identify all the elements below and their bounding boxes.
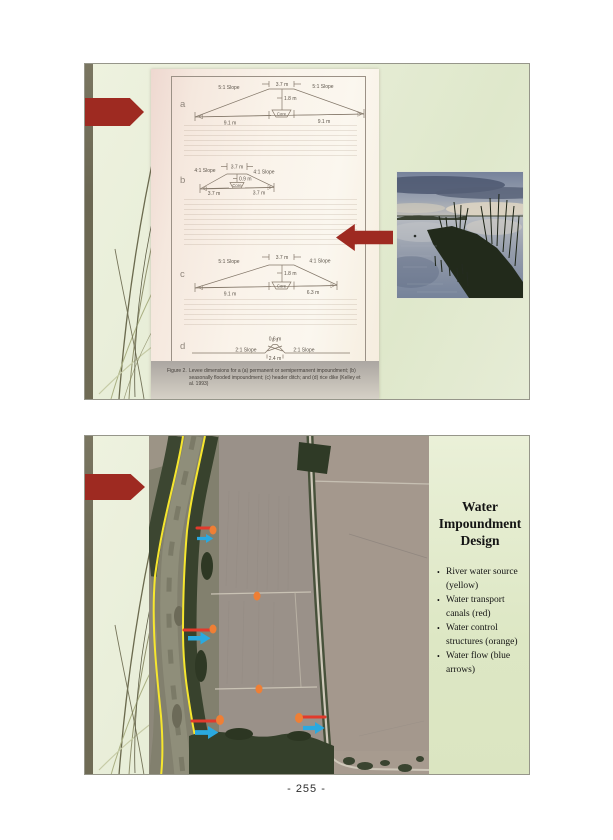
svg-text:2:1 Slope: 2:1 Slope xyxy=(293,348,314,354)
red-arrow-right-icon xyxy=(85,474,145,500)
figure-caption-text: Levee dimensions for a (a) permanent or … xyxy=(189,368,366,388)
svg-text:5:1 Slope: 5:1 Slope xyxy=(218,85,239,91)
svg-text:5:1 Slope: 5:1 Slope xyxy=(312,84,333,90)
svg-text:4:1 Slope: 4:1 Slope xyxy=(253,170,274,176)
slide-levee-dimensions: a 3.7 m 5:1 Slope 5:1 Slope 1.8 m Co xyxy=(84,63,530,400)
svg-text:b: b xyxy=(180,175,185,186)
design-legend-panel: Water Impoundment Design River water sou… xyxy=(429,436,530,775)
legend-item: River water source (yellow) xyxy=(435,566,525,593)
legend-list: River water source (yellow) Water transp… xyxy=(435,566,525,677)
svg-text:Core: Core xyxy=(277,284,287,289)
legend-item: Water transport canals (red) xyxy=(435,594,525,621)
svg-text:Core: Core xyxy=(232,183,242,188)
legend-item: Water control structures (orange) xyxy=(435,622,525,649)
page-number: - 255 - xyxy=(0,783,613,795)
svg-text:1.8 m: 1.8 m xyxy=(284,271,297,277)
diagram-a: a 3.7 m 5:1 Slope 5:1 Slope 1.8 m Co xyxy=(180,81,364,127)
figure-frame: a 3.7 m 5:1 Slope 5:1 Slope 1.8 m Co xyxy=(171,76,366,362)
flooded-impoundment-photo xyxy=(396,171,524,299)
svg-text:4:1 Slope: 4:1 Slope xyxy=(309,259,330,265)
figure-caption-label: Figure 2. xyxy=(167,368,189,388)
svg-text:5:1 Slope: 5:1 Slope xyxy=(218,259,239,265)
svg-text:d: d xyxy=(180,341,185,352)
diagram-b: b 3.7 m 4:1 Slope 4:1 Slope 0.9 m Core xyxy=(180,163,275,197)
svg-text:3.7 m: 3.7 m xyxy=(276,255,289,261)
svg-text:9.1 m: 9.1 m xyxy=(224,292,237,298)
svg-text:4:1 Slope: 4:1 Slope xyxy=(194,168,215,174)
diagram-d: d 0.6 m 2:1 Slope 2:1 Slope 2.4 m xyxy=(180,337,350,362)
svg-text:3.7 m: 3.7 m xyxy=(253,191,266,197)
svg-text:3.7 m: 3.7 m xyxy=(276,82,289,88)
svg-text:2:1 Slope: 2:1 Slope xyxy=(235,348,256,354)
svg-text:9.1 m: 9.1 m xyxy=(318,119,331,125)
red-arrow-right-icon xyxy=(85,98,144,126)
svg-text:0.6 m: 0.6 m xyxy=(269,337,282,343)
svg-text:6.3 m: 6.3 m xyxy=(307,290,320,296)
panel-title: Water Impoundment Design xyxy=(435,498,525,549)
levee-cross-sections: a 3.7 m 5:1 Slope 5:1 Slope 1.8 m Co xyxy=(172,77,365,361)
legend-item: Water flow (blue arrows) xyxy=(435,650,525,677)
svg-text:1.8 m: 1.8 m xyxy=(284,96,297,102)
aerial-map xyxy=(149,436,429,775)
svg-text:3.7 m: 3.7 m xyxy=(208,191,221,197)
svg-text:3.7 m: 3.7 m xyxy=(231,165,244,171)
figure-caption-strip: Figure 2. Levee dimensions for a (a) per… xyxy=(151,361,379,399)
svg-text:0.9 m: 0.9 m xyxy=(239,177,252,183)
svg-text:Core: Core xyxy=(277,112,287,117)
slide-water-impoundment-design: Water Impoundment Design River water sou… xyxy=(84,435,530,775)
svg-text:a: a xyxy=(180,99,186,110)
diagram-c: c 3.7 m 5:1 Slope 4:1 Slope 1.8 m Co xyxy=(180,254,337,298)
svg-text:9.1 m: 9.1 m xyxy=(224,121,237,127)
svg-text:c: c xyxy=(180,269,185,280)
document-page: a 3.7 m 5:1 Slope 5:1 Slope 1.8 m Co xyxy=(0,0,613,840)
